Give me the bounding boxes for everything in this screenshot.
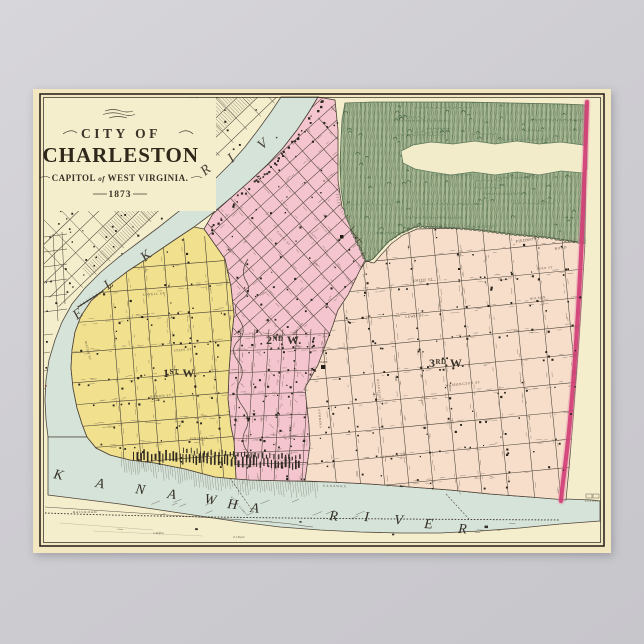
svg-text:CITY OF: CITY OF (81, 126, 161, 141)
svg-text:R: R (328, 509, 339, 525)
svg-text:3RD W.: 3RD W. (429, 356, 465, 370)
svg-text:CAPITOL of WEST VIRGINIA.: CAPITOL of WEST VIRGINIA. (52, 173, 189, 183)
svg-text:STATE: STATE (319, 360, 328, 364)
svg-text:1873: 1873 (109, 190, 132, 200)
svg-text:RAILROAD: RAILROAD (73, 510, 97, 514)
svg-text:CHARLESTON: CHARLESTON (43, 143, 200, 167)
svg-text:O.J.Payne: O.J.Payne (233, 536, 245, 539)
svg-text:E: E (423, 517, 434, 533)
svg-text:1ST W.: 1ST W. (163, 366, 197, 380)
svg-text:G.Ruffner: G.Ruffner (153, 532, 165, 535)
svg-text:2ND W.: 2ND W. (266, 333, 302, 347)
svg-text:R: R (457, 522, 468, 538)
svg-text:KANAWHA: KANAWHA (323, 484, 347, 489)
